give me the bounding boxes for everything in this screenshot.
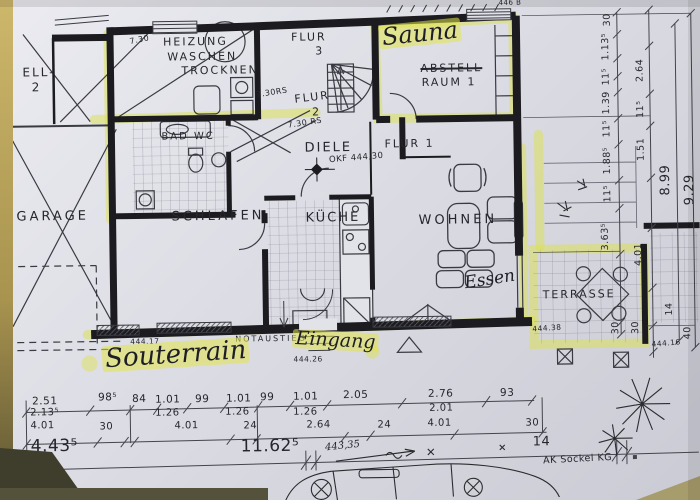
dim-730rs-b: 7.30 RS [287,117,322,130]
hand-label-eingang: Eingang [292,329,379,353]
room-label-flur2-line1: FLUR [294,90,331,105]
dim-right1: 3.63⁵ [601,223,611,251]
room-label-abstell: ABSTELL [420,62,482,74]
anno-okf: OKF 444,30 [329,152,384,165]
dim-right2: 4.01 [634,243,644,266]
dim-row1: 2.51 [32,396,58,407]
dim-right-total: 9.29 [683,174,696,205]
room-label-flur1: FLUR 1 [384,138,434,150]
room-label-garage: GARAGE [16,210,89,224]
hand-label-sauna: Sauna [378,17,462,49]
dim-right1: 30 [631,321,641,334]
anno-level-44426: 444.26 [293,355,322,363]
hand-label-souterrain: Souterrain [101,337,250,373]
room-label-raum1: RAUM 1 [422,76,477,88]
dim-row3: 4.01 [427,419,451,429]
room-label-kueche: KÜCHE [305,211,360,225]
room-label-ell2-line2: 2 [32,81,42,93]
dim-row3: 30 [99,422,113,432]
dim-right2: 11⁵ [636,100,646,118]
room-label-heizung: HEIZUNG [163,36,228,48]
dim-right1: 1.13⁵ [601,33,611,61]
dim-row3: 4.01 [30,421,54,431]
dim-right1: 11⁵ [602,120,612,138]
dim-row1: 1.01 [155,394,181,405]
room-label-flur3-line1: FLUR [291,31,327,42]
anno-corner: 446 B [499,0,522,7]
dim-right2: 40 [683,326,693,339]
dim-row3: 4.01 [174,421,198,431]
dim-row2: 2.01 [429,404,453,414]
floor-plan: ELL-2GARAGEHEIZUNGWASCHENTROCKNENFLUR37.… [0,0,700,500]
room-label-terrasse: TERRASSE [543,288,616,300]
dim-right1: 30 [611,321,621,334]
room-label-wohnen: WOHNEN [419,213,498,227]
dim-row3: 30 [525,418,539,428]
dim-total: 14 [533,435,551,448]
anno-level-44416: 444.16 [651,338,681,348]
dim-row1: 84 [132,394,147,405]
dim-row2: 1.26 [155,408,179,418]
dim-row3: 24 [377,420,391,430]
dim-right2: 14 [665,302,675,315]
dim-right2: 2.64 [635,59,645,82]
dim-row3: 24 [243,421,257,431]
room-label-ell2-line1: ELL- [22,66,55,78]
dim-right1: 11⁵ [603,185,613,203]
room-label-waschen: WASCHEN [167,51,237,63]
dim-right1: 11⁵ [601,68,611,86]
anno-level-44438: 444.38 [532,324,562,333]
dim-total: 11.62⁵ [241,438,300,456]
dim-row1: 2.76 [428,389,454,400]
floor-plan-labels: ELL-2GARAGEHEIZUNGWASCHENTROCKNENFLUR37.… [0,0,700,500]
room-label-diele: DIELE [304,141,352,155]
hand-anno-44335: 443,35 [325,440,361,453]
dim-row1: 93 [500,388,515,399]
floor-plan-photo: ELL-2GARAGEHEIZUNGWASCHENTROCKNENFLUR37.… [0,0,700,500]
hand-label-essen: Essen [463,268,516,293]
dim-right2: 1.51 [636,138,646,161]
dim-right-total: 8.99 [659,165,672,196]
dim-row1: 99 [195,394,210,405]
dim-row1: 99 [260,392,275,403]
dim-row1: 98⁵ [98,392,117,403]
dim-total: 4.43⁵ [31,438,78,456]
dim-row1: 1.01 [226,393,252,404]
dim-row3: 2.64 [306,420,330,430]
dim-row1: 2.05 [343,390,369,401]
room-label-trocknen: TROCKNEN [181,64,258,76]
dim-right1: 30 [603,13,613,26]
dim-row2: 2.13⁵ [30,408,59,418]
anno-ak-sockel: AK Sockel KG [543,453,612,466]
dim-730rs-a: 7.30RS [256,86,288,99]
dim-right1: 1.39 [602,91,612,114]
room-label-flur3-line2: 3 [315,45,324,56]
dim-right1: 1.88⁵ [603,147,613,175]
dim-730: 7.30 [129,34,150,46]
dim-row2: 1.26 [225,407,249,417]
room-label-schlafen: SCHLAFEN [171,209,264,223]
dim-row2: 1.26 [293,407,317,417]
room-label-badwc: BAD WC [161,132,215,143]
dim-row1: 1.01 [293,391,319,402]
